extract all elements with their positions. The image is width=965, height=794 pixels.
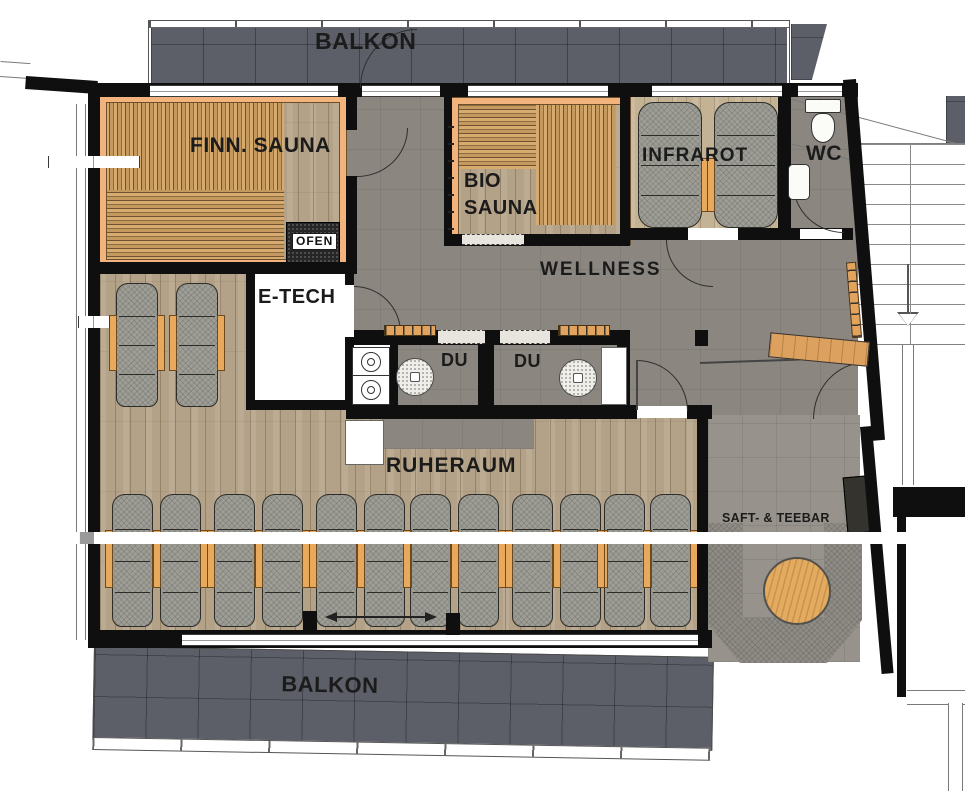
lounger-segment — [367, 529, 402, 530]
dryer-door-icon — [361, 380, 381, 400]
right-outline-upper — [902, 345, 914, 485]
side-table — [169, 315, 177, 371]
lounger-segment — [217, 592, 252, 593]
balcony-top-railing — [149, 21, 789, 28]
lounger-segment — [563, 529, 598, 530]
lounger-segment — [413, 592, 448, 593]
etech-label: E-TECH — [258, 286, 335, 309]
right-edge-grey — [946, 96, 965, 144]
sliding-door-arrow-right — [425, 612, 437, 622]
bio-wall-right — [620, 97, 630, 245]
sauna-oven-label: OFEN — [292, 233, 337, 250]
lounger — [176, 283, 218, 407]
lounger — [410, 494, 451, 627]
lounger-segment — [179, 345, 215, 346]
ruheraum-door-leaf — [636, 360, 638, 410]
ruheraum-label: RUHERAUM — [386, 454, 517, 478]
window-left-1 — [48, 156, 140, 168]
washer-dryer-stack — [352, 347, 390, 405]
lounger-segment — [115, 529, 150, 530]
du-wall-bottom — [346, 405, 637, 419]
shower-shelf-niche — [601, 347, 627, 405]
lounger-segment — [119, 345, 155, 346]
lounger — [560, 494, 601, 627]
finn-right-wall-upper — [346, 96, 357, 130]
lounger-segment — [115, 592, 150, 593]
dryer-unit — [353, 376, 389, 404]
teebar-right-wall — [860, 426, 894, 674]
etech-wall-top — [246, 264, 354, 273]
lounger-segment — [265, 561, 300, 562]
side-table — [157, 315, 165, 371]
lounger-segment — [163, 529, 198, 530]
wc-sink — [788, 164, 810, 200]
balcony-top-floor — [151, 28, 787, 87]
etech-door-gap — [345, 285, 354, 337]
window-top-5 — [798, 85, 842, 97]
lounger — [214, 494, 255, 627]
slider-post-left — [303, 611, 317, 633]
towel-rail-right — [558, 325, 610, 336]
stair-arrow-down — [899, 314, 917, 326]
infrarot-door-gap — [688, 228, 738, 240]
lounger — [650, 494, 691, 627]
lounger-segment — [717, 135, 775, 136]
neighbor-balcony-piece — [791, 24, 827, 80]
lounger-segment — [515, 592, 550, 593]
lounger — [364, 494, 405, 627]
lounger-segment — [607, 529, 642, 530]
lounger-segment — [653, 561, 688, 562]
lounger-segment — [115, 561, 150, 562]
teebar-west-wall — [697, 413, 708, 648]
infrarot-label: INFRAROT — [642, 145, 748, 167]
lounger-segment — [265, 529, 300, 530]
lounger-segment — [461, 529, 496, 530]
shower-apron-tile — [382, 419, 534, 449]
balcony-top — [148, 20, 790, 88]
lounger-segment — [653, 592, 688, 593]
lounger-segment — [413, 529, 448, 530]
towel-hooks-corridor — [448, 112, 454, 230]
lounger-segment — [163, 561, 198, 562]
lounger-segment — [265, 592, 300, 593]
shaft-pillar — [345, 420, 384, 465]
wellness-floor-plan: BALKON OFEN FINN. SAUNA BIO SAUNA INFRAR… — [0, 0, 965, 794]
balcony-top-label: BALKON — [315, 28, 416, 55]
washer-door-icon — [361, 352, 381, 372]
lounger-segment — [653, 529, 688, 530]
lounger — [112, 494, 153, 627]
lounger-segment — [461, 561, 496, 562]
finn-sauna-label: FINN. SAUNA — [190, 134, 331, 158]
etech-wall-left — [246, 264, 255, 410]
lounger — [604, 494, 645, 627]
entrance-pier — [695, 330, 708, 346]
du-right-label: DU — [514, 351, 541, 372]
wc-label: WC — [806, 142, 842, 166]
lounger — [316, 494, 357, 627]
lounger-segment — [119, 316, 155, 317]
balcony-bottom: BALKON — [92, 646, 712, 761]
lounger — [458, 494, 499, 627]
du-right-entry — [500, 330, 550, 344]
lounger — [512, 494, 553, 627]
du-left-entry — [438, 330, 485, 344]
side-table — [109, 315, 117, 371]
exterior-wall — [25, 76, 98, 94]
lounger-segment — [607, 561, 642, 562]
side-table — [217, 315, 225, 371]
right-outline-lower-v — [948, 703, 963, 791]
finn-right-wall-lower — [346, 176, 357, 272]
lounger-segment — [367, 592, 402, 593]
lounger-segment — [319, 561, 354, 562]
bio-door-threshold — [462, 234, 524, 245]
lounger-segment — [163, 592, 198, 593]
lounger-segment — [641, 195, 699, 196]
lounger-segment — [641, 135, 699, 136]
stair-arrow-stem — [907, 264, 909, 314]
wellness-label: WELLNESS — [540, 259, 662, 281]
sliding-door-arrow-line — [336, 616, 426, 618]
lounger-segment — [319, 592, 354, 593]
lounger-segment — [515, 561, 550, 562]
washer-unit — [353, 348, 389, 376]
lounger-segment — [119, 374, 155, 375]
sliding-door-arrow-left — [325, 612, 337, 622]
du-left-label: DU — [441, 350, 468, 371]
lounger-segment — [563, 561, 598, 562]
du-mid-wall — [478, 345, 494, 405]
toilet-cistern — [805, 99, 841, 113]
lounger-segment — [515, 529, 550, 530]
lounger-segment — [461, 592, 496, 593]
shower-drain-left — [396, 358, 434, 396]
slider-post-right — [446, 613, 460, 635]
balcony-bottom-label: BALKON — [281, 671, 379, 699]
lounger-segment — [179, 374, 215, 375]
etech-wall-bottom — [246, 400, 354, 410]
lounger — [160, 494, 201, 627]
lounger — [116, 283, 158, 407]
lounger-segment — [563, 592, 598, 593]
lounger-segment — [367, 561, 402, 562]
window-top-1 — [150, 85, 338, 97]
right-wall-vertical — [897, 517, 906, 697]
lounger-segment — [217, 529, 252, 530]
lounger-segment — [413, 561, 448, 562]
window-top-3 — [468, 85, 608, 97]
toilet-bowl — [811, 113, 835, 143]
right-wall-band — [893, 487, 965, 517]
bio-sauna-label: BIO SAUNA — [464, 168, 564, 222]
lounger-segment — [217, 561, 252, 562]
window-left-3 — [0, 532, 965, 544]
lounger-segment — [717, 195, 775, 196]
lounger-segment — [179, 316, 215, 317]
shower-drain-right — [559, 359, 597, 397]
towel-rail-left — [384, 325, 436, 336]
lounger — [262, 494, 303, 627]
window-left-2 — [78, 316, 110, 328]
left-outside-railing — [76, 104, 86, 640]
lounger-segment — [607, 592, 642, 593]
window-bottom — [182, 634, 698, 646]
window-top-4 — [652, 85, 782, 97]
teebar-label: SAFT- & TEEBAR — [722, 511, 830, 525]
teebar-round-table — [763, 557, 831, 625]
lounger-segment — [319, 529, 354, 530]
balcony-bottom-floor — [92, 646, 714, 751]
